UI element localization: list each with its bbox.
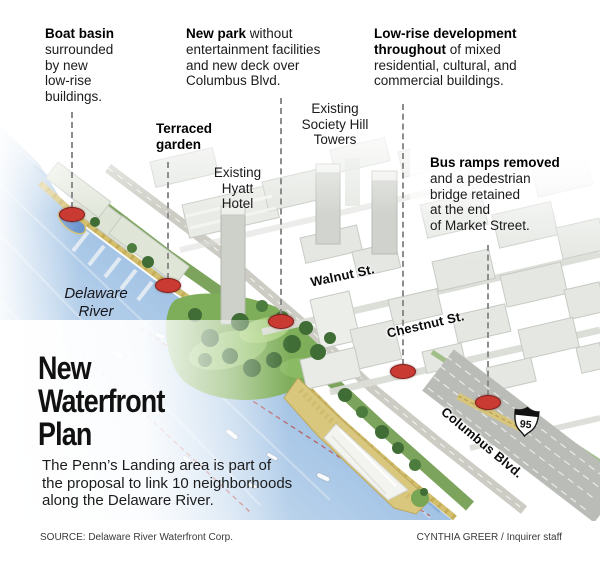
callout-boat-basin-lead: Boat basin	[45, 26, 114, 41]
label-hyatt-hotel: Existing Hyatt Hotel	[200, 165, 275, 212]
leader-line-bus-ramps	[487, 245, 489, 396]
callout-bus-ramps-lead: Bus ramps removed	[430, 155, 560, 170]
leader-line-boat-basin	[71, 112, 73, 208]
callout-low-rise: Low-rise development throughout of mixed…	[374, 26, 564, 89]
marker-boat-basin	[59, 207, 85, 222]
marker-bus-ramps	[475, 395, 501, 410]
label-society-hill-towers: Existing Society Hill Towers	[290, 101, 380, 148]
river-label: Delaware River	[48, 285, 144, 321]
callout-bus-ramps: Bus ramps removed and a pedestrian bridg…	[430, 155, 580, 234]
page-title: New Waterfront Plan	[38, 352, 164, 451]
interstate-95-shield: 95	[510, 405, 541, 439]
hyatt-hotel-building	[221, 206, 245, 324]
credit-note: CYNTHIA GREER / Inquirer staff	[417, 532, 562, 543]
source-note: SOURCE: Delaware River Waterfront Corp.	[40, 532, 233, 543]
bottom-margin	[0, 521, 600, 566]
marker-terraced-garden	[155, 278, 181, 293]
leader-line-new-park	[280, 98, 282, 315]
left-fade	[0, 110, 80, 390]
interstate-number: 95	[519, 418, 532, 431]
callout-boat-basin: Boat basin surrounded by new low-rise bu…	[45, 26, 155, 105]
callout-boat-basin-rest: surrounded by new low-rise buildings.	[45, 42, 113, 104]
callout-bus-ramps-rest: and a pedestrian bridge retained at the …	[430, 171, 531, 233]
callout-new-park: New park without entertainment facilitie…	[186, 26, 371, 89]
page-description: The Penn’s Landing area is part of the p…	[42, 457, 292, 510]
waterfront-plan-infographic: Boat basin surrounded by new low-rise bu…	[0, 0, 600, 566]
callout-terraced-garden-lead: Terraced garden	[156, 121, 212, 152]
marker-new-park	[268, 314, 294, 329]
callout-new-park-lead: New park	[186, 26, 246, 41]
callout-terraced-garden: Terraced garden	[156, 121, 236, 153]
leader-line-terraced-garden	[167, 162, 169, 279]
marker-low-rise-development	[390, 364, 416, 379]
